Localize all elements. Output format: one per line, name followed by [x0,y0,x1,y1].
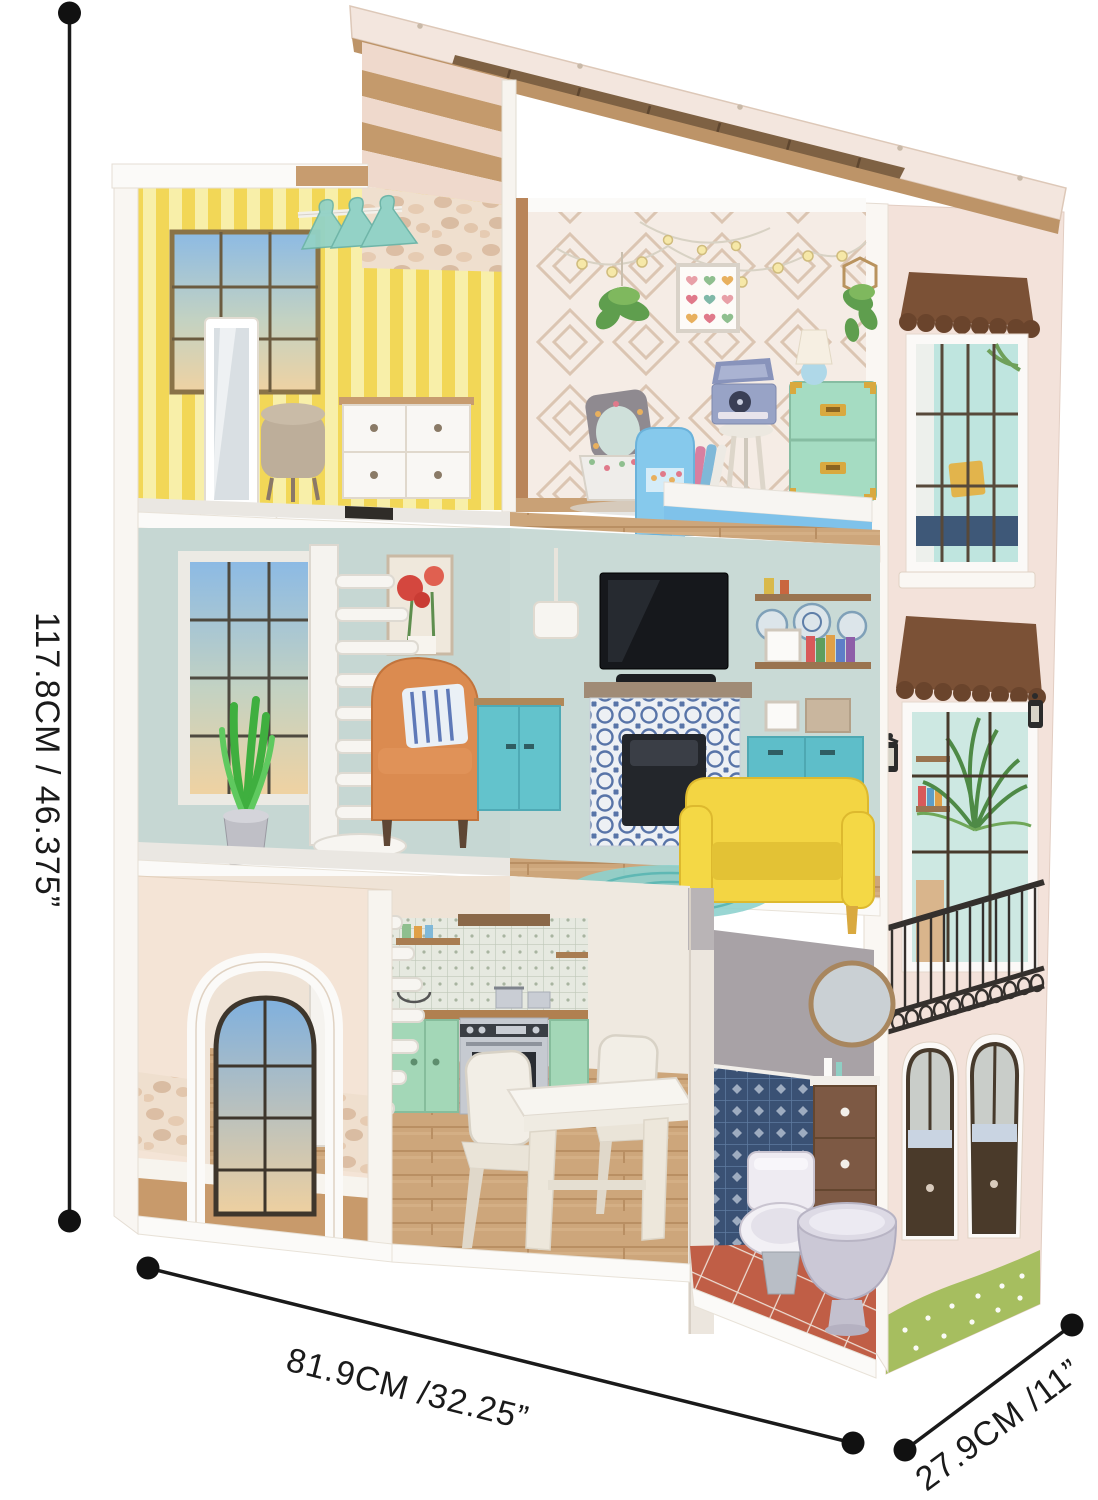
ground-floor [138,876,896,1378]
heart-art-frame [678,265,738,331]
right-exterior-wall [882,205,1064,1374]
left-outer-wall [114,188,138,1234]
tv [600,573,728,686]
kids-bedroom [516,198,881,560]
poppy-art [388,556,452,654]
stool [261,403,325,502]
product-image: 117.8CM / 46.375” 81.9CM /32.25” 27.9CM … [0,0,1098,1500]
side-window-top [899,272,1040,588]
round-mirror [811,963,893,1045]
armchair [372,658,478,848]
dresser [339,397,474,498]
wardrobe-room [112,42,510,526]
arch-doorway-wall [138,876,392,1248]
arched-window [216,998,314,1214]
sideboard [474,698,564,810]
height-dimension-label: 117.8CM / 46.375” [28,612,66,908]
trunk-dresser [790,382,876,500]
